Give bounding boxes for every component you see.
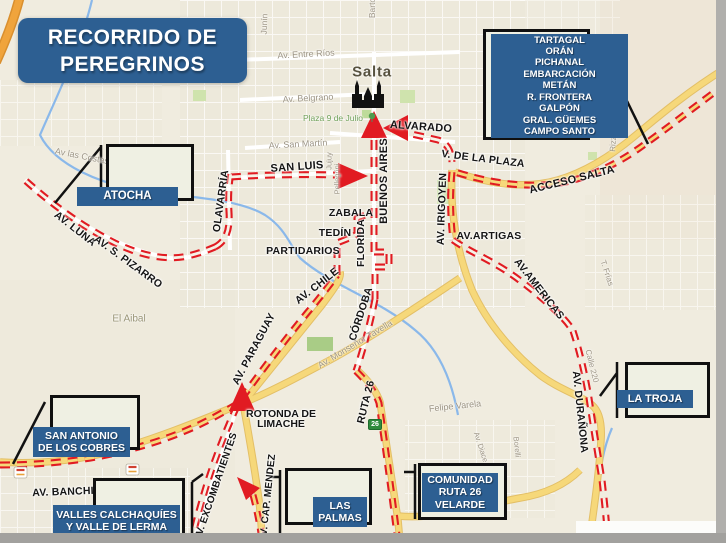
title-line2: PEREGRINOS: [18, 51, 247, 78]
valles-line1: VALLES CALCHAQUÍES: [53, 509, 180, 521]
dest-campo-santo: CAMPO SANTO: [491, 126, 628, 137]
city-grid: [585, 195, 726, 310]
ruta-26-shield-icon: 26: [368, 419, 382, 430]
street-label-av-artigas: AV.ARTIGAS: [456, 230, 521, 242]
comunidad-line2: RUTA 26: [422, 486, 498, 498]
callout-label-destinations-north: TARTAGAL ORÁN PICHANAL EMBARCACIÓN METÁN…: [491, 34, 628, 138]
map-label-rizz: Rizz: [608, 136, 618, 152]
motorway: [0, 0, 20, 62]
callout-label-las-palmas: LAS PALMAS: [313, 497, 367, 527]
las-palmas-line2: PALMAS: [313, 512, 367, 524]
callout-label-atocha: ATOCHA: [77, 187, 178, 206]
callout-label-san-antonio: SAN ANTONIO DE LOS COBRES: [33, 427, 130, 457]
dest-embarcacion: EMBARCACIÓN: [491, 69, 628, 80]
comunidad-line3: VELARDE: [422, 499, 498, 511]
dest-tartagal: TARTAGAL: [491, 35, 628, 46]
rotonda-line2: LIMACHE: [246, 419, 316, 429]
dest-galpon: GALPÓN: [491, 103, 628, 114]
san-antonio-line2: DE LOS COBRES: [33, 442, 130, 454]
map-label-barto: Barto: [367, 0, 377, 18]
street-label-florida: FLORIDA: [355, 219, 367, 267]
dest-pichanal: PICHANAL: [491, 57, 628, 68]
la-troja-text: LA TROJA: [617, 393, 693, 406]
street-label-rotonda-de-limache: ROTONDA DE LIMACHE: [246, 409, 316, 429]
frame-edge-bottom: [0, 533, 726, 543]
map-label-pellegrini: Pellegrini: [333, 164, 342, 195]
street-label-tedin: TEDÍN: [319, 227, 352, 239]
callout-label-la-troja: LA TROJA: [617, 390, 693, 408]
san-antonio-line1: SAN ANTONIO: [33, 430, 130, 442]
street-label-zabala: ZABALA: [329, 207, 373, 219]
title-line1: RECORRIDO DE: [18, 24, 247, 51]
map-label-plaza-9-de-julio: Plaza 9 de Julio: [303, 113, 363, 123]
map-label-junin: Junín: [259, 13, 270, 34]
dest-gral-guemes: GRAL. GÜEMES: [491, 115, 628, 126]
frame-edge-right: [716, 0, 726, 543]
las-palmas-line1: LAS: [313, 500, 367, 512]
dest-metan: METÁN: [491, 80, 628, 91]
street-label-av-irigoyen: AV. IRIGOYEN: [435, 173, 450, 246]
street-label-buenos-aires: BUENOS AIRES: [378, 138, 390, 224]
comunidad-line1: COMUNIDAD: [422, 474, 498, 486]
map-attribution-bar: [576, 521, 716, 533]
map-label-el-aibal: El Aibal: [112, 314, 145, 325]
valles-line2: Y VALLE DE LERMA: [53, 521, 180, 533]
callout-label-comunidad: COMUNIDAD RUTA 26 VELARDE: [422, 473, 498, 512]
street-label-av-banchi: AV. BANCHI: [32, 485, 94, 499]
atocha-text: ATOCHA: [77, 190, 178, 203]
map-label-jujuy: Jujuy: [325, 152, 334, 170]
dest-r-frontera: R. FRONTERA: [491, 92, 628, 103]
pilgrim-route-map: SAN LUIS ALVARADO BUENOS AIRES ZABALA TE…: [0, 0, 726, 543]
city-label-salta: Salta: [352, 64, 392, 81]
street-label-partidarios: PARTIDARIOS: [266, 245, 340, 257]
dest-oran: ORÁN: [491, 46, 628, 57]
page-title: RECORRIDO DE PEREGRINOS: [18, 18, 247, 83]
city-grid: [0, 80, 162, 146]
